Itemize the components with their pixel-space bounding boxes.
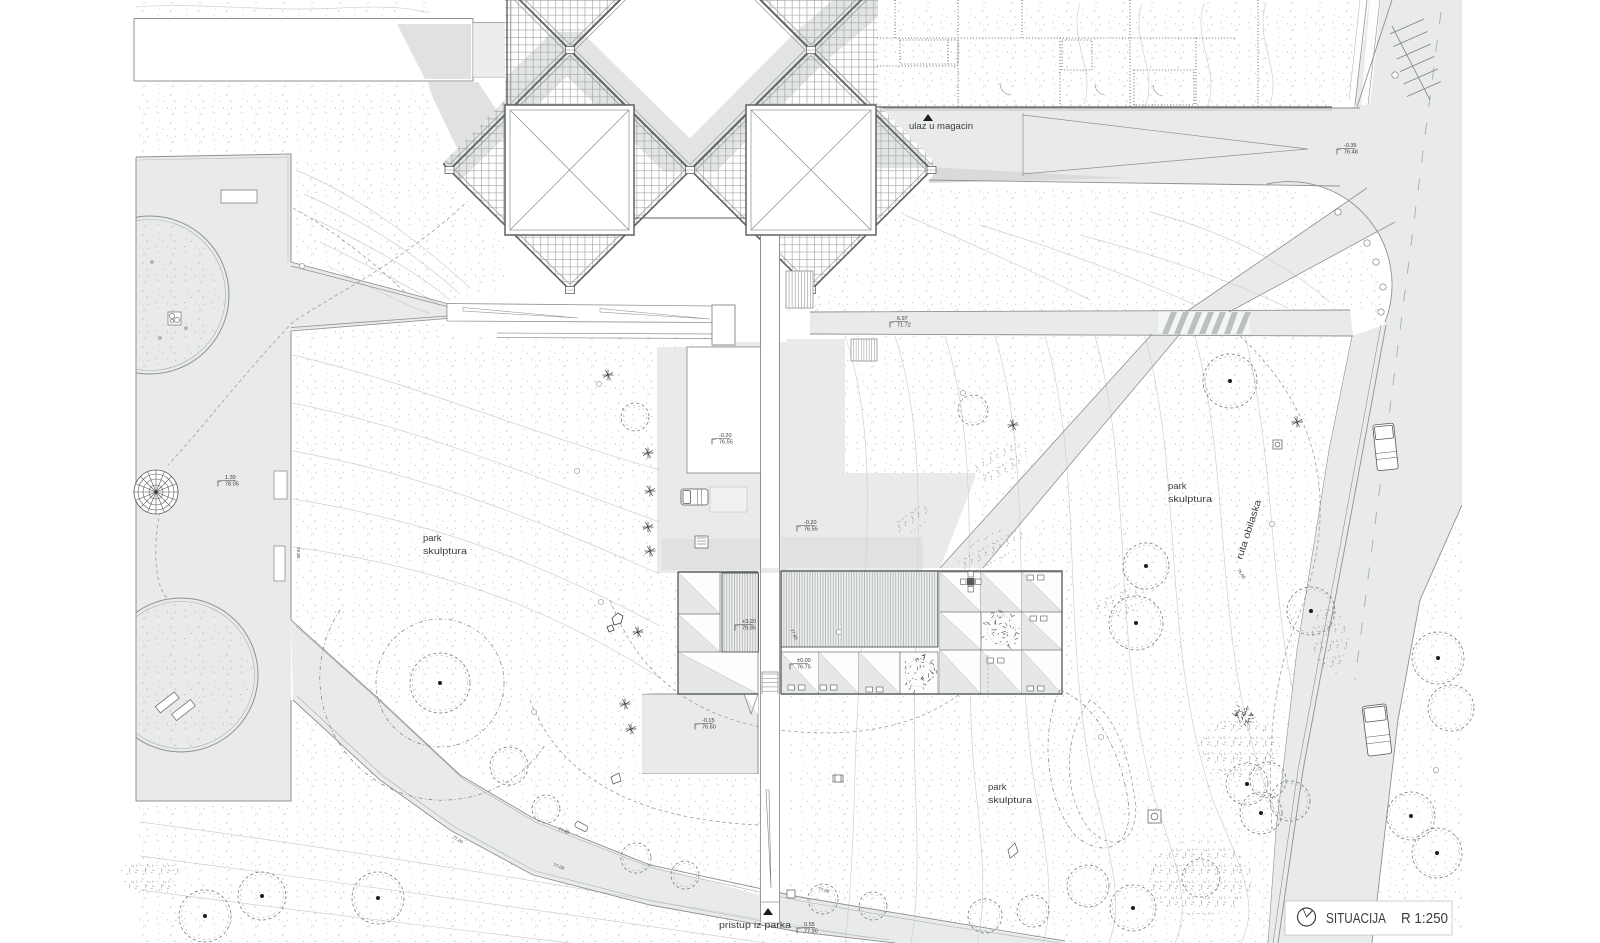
svg-text:79.95: 79.95 (742, 626, 756, 632)
svg-text:78.05: 78.05 (225, 482, 239, 488)
svg-text:park: park (1168, 481, 1187, 492)
svg-text:77.30: 77.30 (804, 929, 818, 935)
svg-text:skulptura: skulptura (1168, 494, 1213, 505)
svg-text:R 1:250: R 1:250 (1401, 910, 1448, 927)
svg-text:76.75: 76.75 (797, 665, 811, 671)
svg-text:79.80: 79.80 (296, 547, 301, 559)
svg-text:skulptura: skulptura (988, 795, 1033, 806)
svg-text:76.48: 76.48 (1344, 150, 1358, 156)
svg-text:park: park (423, 533, 442, 544)
svg-text:pristup iz parka: pristup iz parka (719, 920, 792, 931)
svg-text:76.55: 76.55 (804, 527, 818, 533)
svg-text:park: park (988, 782, 1007, 793)
svg-text:SITUACIJA: SITUACIJA (1326, 910, 1386, 927)
svg-text:71.72: 71.72 (897, 323, 911, 329)
svg-text:ulaz u magacin: ulaz u magacin (909, 121, 973, 131)
svg-text:76.55: 76.55 (719, 440, 733, 446)
svg-text:76.60: 76.60 (702, 725, 716, 731)
svg-text:skulptura: skulptura (423, 546, 468, 557)
